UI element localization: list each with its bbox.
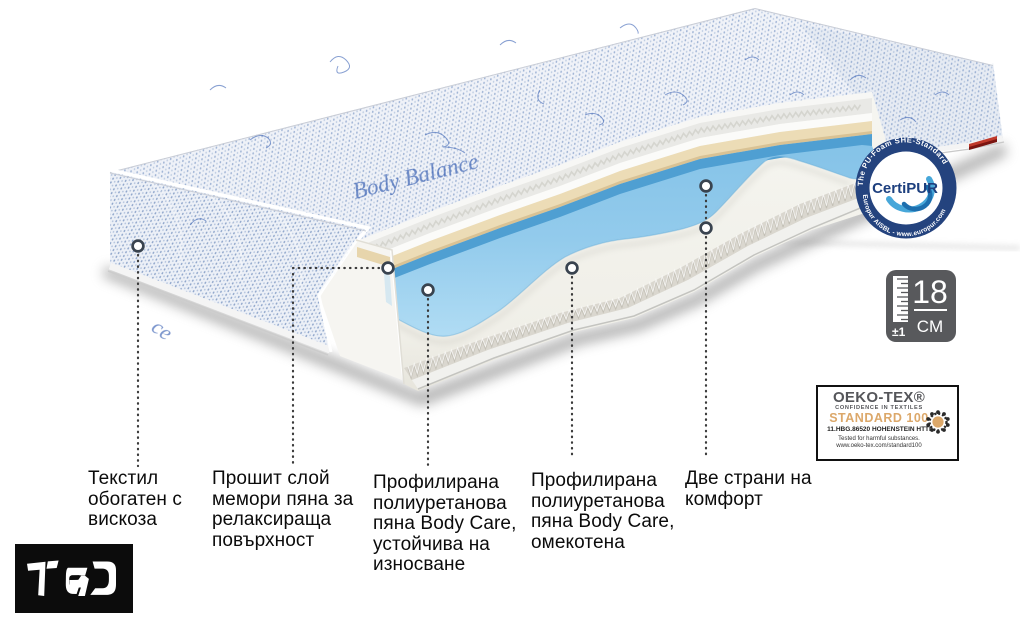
svg-text:ce: ce — [147, 314, 178, 346]
svg-text:CertiPUR: CertiPUR — [872, 180, 938, 197]
svg-text:18: 18 — [912, 274, 948, 310]
svg-text:±1: ±1 — [892, 325, 906, 339]
svg-text:CM: CM — [917, 317, 943, 336]
